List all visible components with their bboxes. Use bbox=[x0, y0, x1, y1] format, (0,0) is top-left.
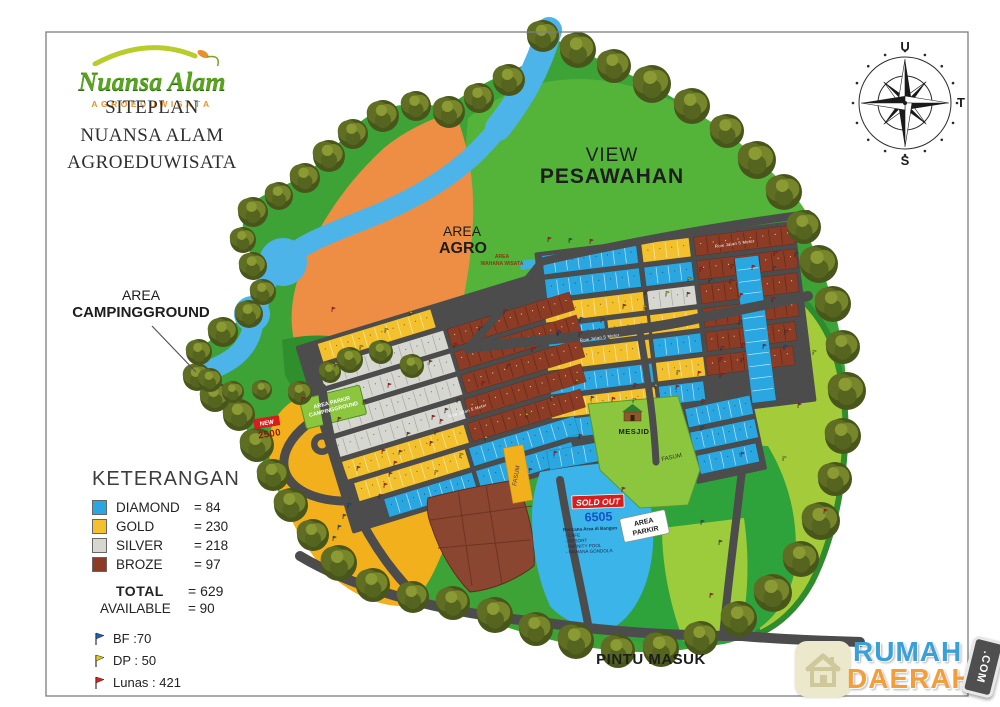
siteplan-poster: Row Jalan 5 Meter Row Jalan 5 Meter Row … bbox=[0, 0, 1000, 707]
watermark-com-tag: .COM bbox=[960, 635, 1000, 699]
svg-text:SOLD OUT: SOLD OUT bbox=[576, 496, 621, 508]
entrance-label: PINTU MASUK bbox=[596, 652, 706, 667]
view-label: VIEW bbox=[586, 146, 639, 165]
legend-total: TOTAL = 629 bbox=[92, 582, 327, 600]
legend-item-diamond: DIAMOND = 84 bbox=[92, 499, 327, 516]
legend-item-broze: BROZE = 97 bbox=[92, 556, 327, 573]
legend-available: AVAILABLE = 90 bbox=[92, 600, 327, 617]
color-swatch bbox=[92, 538, 107, 553]
wahana-label: AREA bbox=[495, 254, 510, 260]
watermark-daerah: DAERAH bbox=[847, 663, 973, 695]
legend-marker-dp: DP : 50 bbox=[92, 651, 327, 669]
leaf-icon bbox=[196, 48, 210, 59]
color-swatch bbox=[92, 500, 107, 515]
campground-label: CAMPINGGROUND bbox=[72, 305, 210, 320]
siteplan-title: SITEPLAN NUANSA ALAM AGROEDUWISATA bbox=[52, 94, 252, 177]
area-agro-label: AGRO bbox=[439, 241, 487, 257]
title-line: AGROEDUWISATA bbox=[52, 149, 252, 177]
compass-north: U bbox=[900, 39, 909, 54]
legend-item-silver: SILVER = 218 bbox=[92, 537, 327, 554]
logo-swoosh bbox=[77, 36, 227, 66]
legend-item-gold: GOLD = 230 bbox=[92, 518, 327, 535]
title-line: NUANSA ALAM bbox=[52, 122, 252, 150]
legend: KETERANGAN DIAMOND = 84 GOLD = 230 SILVE… bbox=[92, 468, 327, 691]
legend-marker-bf: BF :70 bbox=[92, 629, 327, 647]
house-icon bbox=[795, 641, 851, 697]
flag-icon bbox=[92, 653, 106, 668]
campground-label: AREA bbox=[122, 288, 160, 302]
legend-title: KETERANGAN bbox=[92, 468, 327, 491]
flag-icon bbox=[92, 675, 106, 690]
brand-name: Nuansa Alam bbox=[62, 67, 242, 97]
title-line: SITEPLAN bbox=[52, 94, 252, 122]
color-swatch bbox=[92, 519, 107, 534]
mesjid-label: MESJID bbox=[619, 427, 650, 436]
wahana-label: WAHANA WISATA bbox=[481, 261, 524, 267]
area-agro-label: AREA bbox=[443, 224, 481, 238]
watermark-logo: RUMAH DAERAH .COM bbox=[795, 636, 995, 704]
compass-rose: U T S bbox=[852, 39, 965, 168]
compass-east: T bbox=[957, 95, 965, 110]
legend-marker-lunas: Lunas : 421 bbox=[92, 673, 327, 691]
compass-south: S bbox=[901, 153, 910, 168]
svg-text:6505: 6505 bbox=[584, 510, 612, 525]
flag-icon bbox=[92, 631, 106, 646]
color-swatch bbox=[92, 557, 107, 572]
pesawahan-label: PESAWAHAN bbox=[540, 166, 684, 187]
